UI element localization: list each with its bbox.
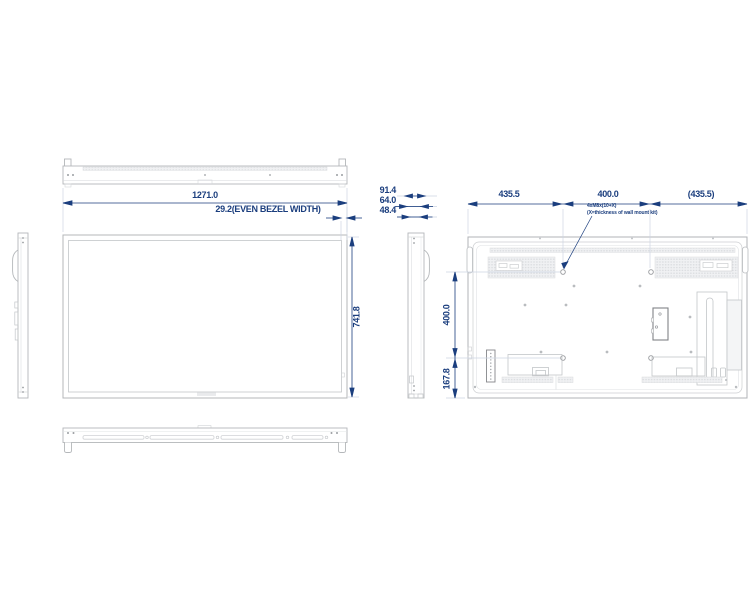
- dimension-linework: [0, 0, 750, 600]
- dim-front-height: 741.8: [352, 306, 361, 327]
- dim-depth-body: 48.4: [371, 206, 396, 215]
- wall-mount-note-line2: (X=thickness of wall mount kit): [587, 210, 657, 216]
- dim-rear-span-left: 435.5: [498, 190, 519, 199]
- dim-vesa-vertical: 400.0: [443, 304, 452, 325]
- dimension-drawing: 1271.0 29.2(EVEN BEZEL WIDTH) 91.4 64.0 …: [0, 0, 750, 600]
- dim-bezel-width: 29.2(EVEN BEZEL WIDTH): [215, 205, 320, 214]
- dim-depth-handle: 64.0: [371, 196, 396, 205]
- dimension-lines: [63, 194, 747, 398]
- dim-depth-overall: 91.4: [371, 186, 396, 195]
- dim-rear-span-center: 400.0: [597, 190, 618, 199]
- extension-lines: [63, 188, 747, 398]
- dim-front-width: 1271.0: [192, 191, 218, 200]
- dim-bottom-offset: 167.8: [443, 368, 452, 389]
- wall-mount-note-line1: 4xM8x(10+X): [587, 203, 616, 209]
- dim-rear-span-right: (435.5): [688, 190, 714, 199]
